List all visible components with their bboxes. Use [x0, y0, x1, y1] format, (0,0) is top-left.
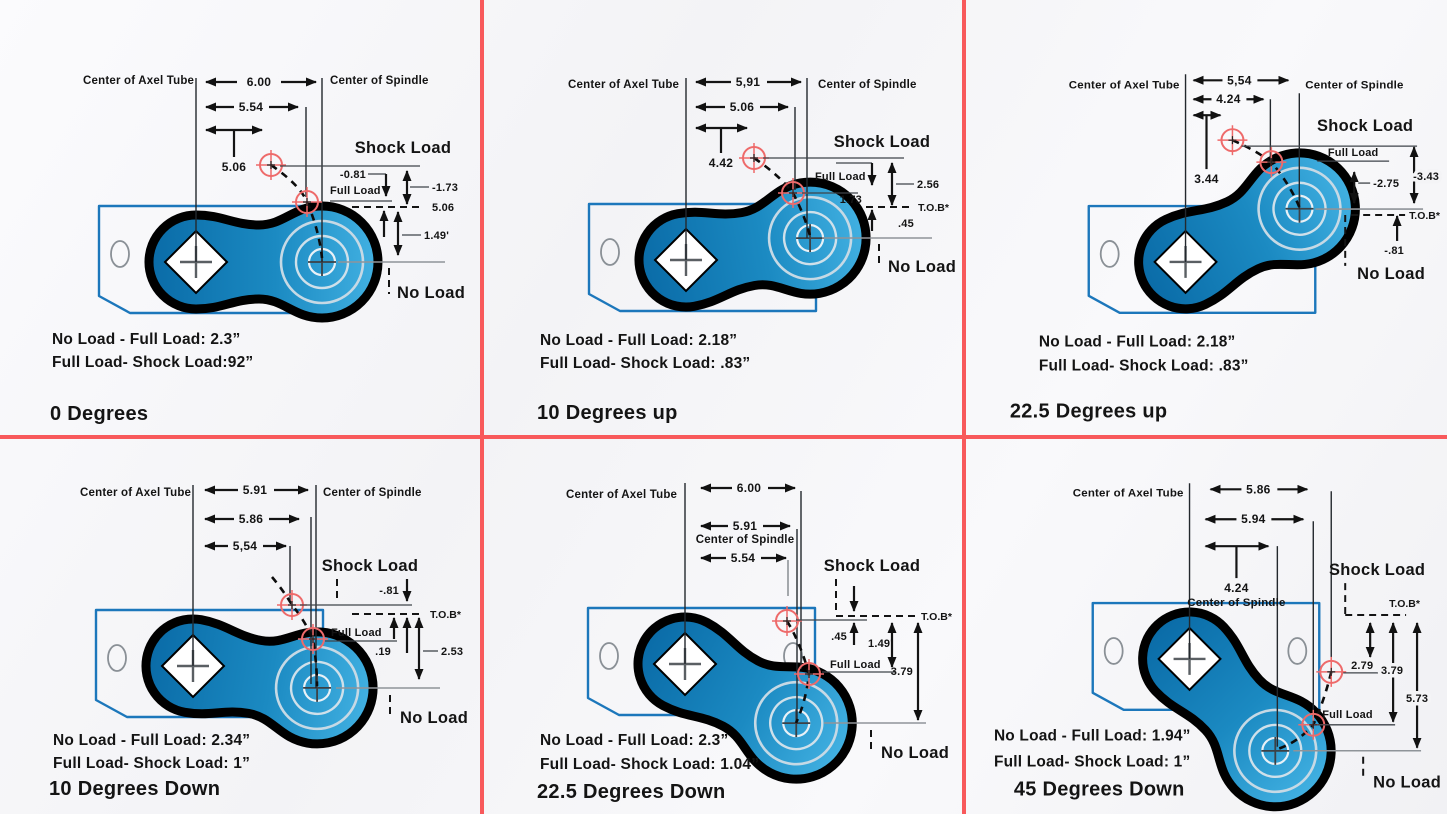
shock-load-label: Shock Load	[834, 133, 931, 151]
panel-title: 45 Degrees Down	[1014, 779, 1185, 801]
dim2-label: 5.54	[239, 100, 264, 114]
dim1-label: 5,54	[1227, 73, 1252, 87]
value-1: -.81	[379, 585, 399, 597]
dim3-label: 4.42	[709, 156, 734, 170]
panel-title: 10 Degrees up	[537, 402, 678, 424]
spindle-label: Center of Spindle	[1187, 597, 1285, 609]
value-2: 2.79	[1351, 660, 1373, 672]
no-load-label: No Load	[1357, 265, 1425, 283]
spindle-label: Center of Spindle	[818, 79, 917, 91]
dim2-label: 5.06	[730, 100, 755, 114]
value-3: .19	[375, 646, 391, 658]
dim1-label: 5.86	[1246, 482, 1271, 496]
trailing-arm	[630, 173, 875, 323]
spindle-label: Center of Spindle	[696, 534, 795, 546]
diagram-45-degrees-down: 5.86 5.94 4.24 Center of Spindle Shock L…	[966, 439, 1447, 814]
no-load-label: No Load	[1373, 774, 1441, 792]
note-line-1: No Load - Full Load: 1.94”	[994, 728, 1191, 745]
value-3: T.O.B*	[1409, 211, 1441, 222]
note-line-1: No Load - Full Load: 2.3”	[540, 732, 728, 749]
shock-load-label: Shock Load	[1329, 561, 1425, 579]
axel-tube-label: Center of Axel Tube	[80, 487, 191, 499]
panel-title: 0 Degrees	[50, 403, 148, 425]
note-line-2: Full Load- Shock Load: 1.04”	[540, 756, 759, 773]
spindle-label: Center of Spindle	[1305, 79, 1403, 91]
dim2-label: 5.94	[1241, 512, 1266, 526]
diagram-22-5-degrees-down: 6.00 5.91 Center of Spindle 5.54 Shock L…	[484, 439, 966, 814]
note-line-2: Full Load- Shock Load: .83”	[540, 355, 750, 372]
panel-22-5-degrees-up: 5,54 4.24 3.44 Shock Load Full Load -3.4…	[966, 0, 1447, 437]
panel-title: 22.5 Degrees up	[1010, 401, 1167, 423]
no-load-label: No Load	[888, 258, 956, 276]
note-line-2: Full Load- Shock Load: 1”	[994, 754, 1190, 771]
dim2-label: 5.91	[733, 519, 758, 533]
dim3-label: 5,54	[233, 539, 258, 553]
spindle-label: Center of Spindle	[323, 487, 422, 499]
value-3: 3.79	[1381, 665, 1403, 677]
panel-title: 22.5 Degrees Down	[537, 781, 726, 803]
diagram-22-5-degrees-up: 5,54 4.24 3.44 Shock Load Full Load -3.4…	[966, 0, 1447, 437]
value-3: 1.49'	[868, 638, 893, 650]
dim1-label: 6.00	[737, 481, 762, 495]
value-2: .45	[831, 631, 847, 643]
note-line-1: No Load - Full Load: 2.18”	[1039, 334, 1236, 351]
dim1-label: 5.91	[243, 483, 268, 497]
note-line-1: No Load - Full Load: 2.34”	[53, 732, 250, 749]
dim3-label: 5.06	[222, 160, 247, 174]
value-3: 5.06	[432, 202, 454, 214]
panel-10-degrees-up: 5,91 5.06 4.42 Shock Load Full Load 2.56…	[484, 0, 966, 437]
panel-10-degrees-down: 5.91 5.86 5,54 Shock Load -.81 T.O.B* Fu…	[0, 439, 482, 814]
value-1: -0.81	[340, 169, 366, 181]
full-load-label: Full Load	[330, 185, 381, 197]
shock-load-label: Shock Load	[1317, 117, 1413, 135]
shock-load-label: Shock Load	[824, 557, 921, 575]
spindle-label: Center of Spindle	[330, 75, 429, 87]
panel-22-5-degrees-down: 6.00 5.91 Center of Spindle 5.54 Shock L…	[484, 439, 966, 814]
dim3-label: 5.54	[731, 551, 756, 565]
no-load-label: No Load	[881, 744, 949, 762]
vertical-divider-1	[480, 0, 484, 814]
shock-load-label: Shock Load	[322, 557, 419, 575]
dim3-label: 3.44	[1194, 172, 1219, 186]
value-4: 3.79	[891, 666, 913, 678]
full-load-label: Full Load	[1328, 147, 1379, 159]
dimension-annotations: 6.00 5.91 Center of Spindle 5.54	[696, 481, 795, 565]
axel-tube-label: Center of Axel Tube	[1073, 487, 1184, 499]
dimension-annotations: 5.91 5.86 5,54	[205, 483, 308, 553]
shock-load-crosshair	[1217, 125, 1247, 155]
dim2-label: 4.24	[1216, 92, 1241, 106]
dim1-label: 6.00	[247, 75, 272, 89]
value-1: 2.56	[917, 179, 939, 191]
full-load-label: Full Load	[331, 627, 382, 639]
axel-tube-label: Center of Axel Tube	[1069, 79, 1180, 91]
value-4: 2.53	[441, 646, 463, 658]
vertical-divider-2	[962, 0, 966, 814]
panel-0-degrees: 6.00 5.54 5.06 Shock Load -0.81 Full Loa…	[0, 0, 482, 437]
full-load-label: Full Load	[815, 171, 866, 183]
value-2: T.O.B*	[430, 609, 462, 621]
diagram-0-degrees: 6.00 5.54 5.06 Shock Load -0.81 Full Loa…	[0, 0, 482, 437]
value-3: T.O.B*	[918, 202, 950, 214]
note-line-1: No Load - Full Load: 2.3”	[52, 331, 240, 348]
value-4: 1.49'	[424, 230, 449, 242]
full-load-label: Full Load	[1322, 709, 1373, 721]
note-line-2: Full Load- Shock Load: .83”	[1039, 358, 1249, 375]
value-4: 5.73	[1406, 693, 1428, 705]
diagram-10-degrees-up: 5,91 5.06 4.42 Shock Load Full Load 2.56…	[484, 0, 966, 437]
dim3-label: 4.24	[1224, 581, 1249, 595]
value-4: -.81	[1384, 245, 1404, 257]
value-2: -1.73	[432, 182, 458, 194]
no-load-label: No Load	[400, 709, 468, 727]
note-line-2: Full Load- Shock Load: 1”	[53, 755, 250, 772]
dim2-label: 5.86	[239, 512, 264, 526]
shock-load-crosshair	[256, 150, 286, 180]
diagram-10-degrees-down: 5.91 5.86 5,54 Shock Load -.81 T.O.B* Fu…	[0, 439, 482, 814]
axel-tube-label: Center of Axel Tube	[83, 75, 194, 87]
root: { "colors":{ "divider":"#f8595b", "arm_d…	[0, 0, 1447, 814]
value-4: .45	[898, 218, 914, 230]
value-1: T.O.B*	[1389, 599, 1421, 610]
axel-tube-label: Center of Axel Tube	[566, 489, 677, 501]
axel-tube-label: Center of Axel Tube	[568, 79, 679, 91]
panel-45-degrees-down: 5.86 5.94 4.24 Center of Spindle Shock L…	[966, 439, 1447, 814]
dimension-annotations: 5.86 5.94 4.24 Center of Spindle	[1187, 482, 1307, 609]
dimension-annotations: 5,91 5.06 4.42	[696, 75, 801, 170]
panel-title: 10 Degrees Down	[49, 778, 220, 800]
no-load-label: No Load	[397, 284, 465, 302]
trailing-arm	[1119, 135, 1373, 333]
full-load-label: Full Load	[830, 659, 881, 671]
value-2: 1.73	[840, 194, 862, 206]
trailing-arm	[137, 603, 382, 753]
shock-load-crosshair	[1316, 657, 1346, 687]
value-2: -2.75	[1373, 178, 1399, 190]
note-line-1: No Load - Full Load: 2.18”	[540, 332, 737, 349]
note-line-2: Full Load- Shock Load:92”	[52, 354, 253, 371]
dim1-label: 5,91	[736, 75, 761, 89]
value-1: -3.43	[1413, 171, 1439, 183]
horizontal-divider	[0, 435, 1447, 439]
shock-load-label: Shock Load	[355, 139, 452, 157]
value-1: T.O.B*	[921, 611, 953, 623]
